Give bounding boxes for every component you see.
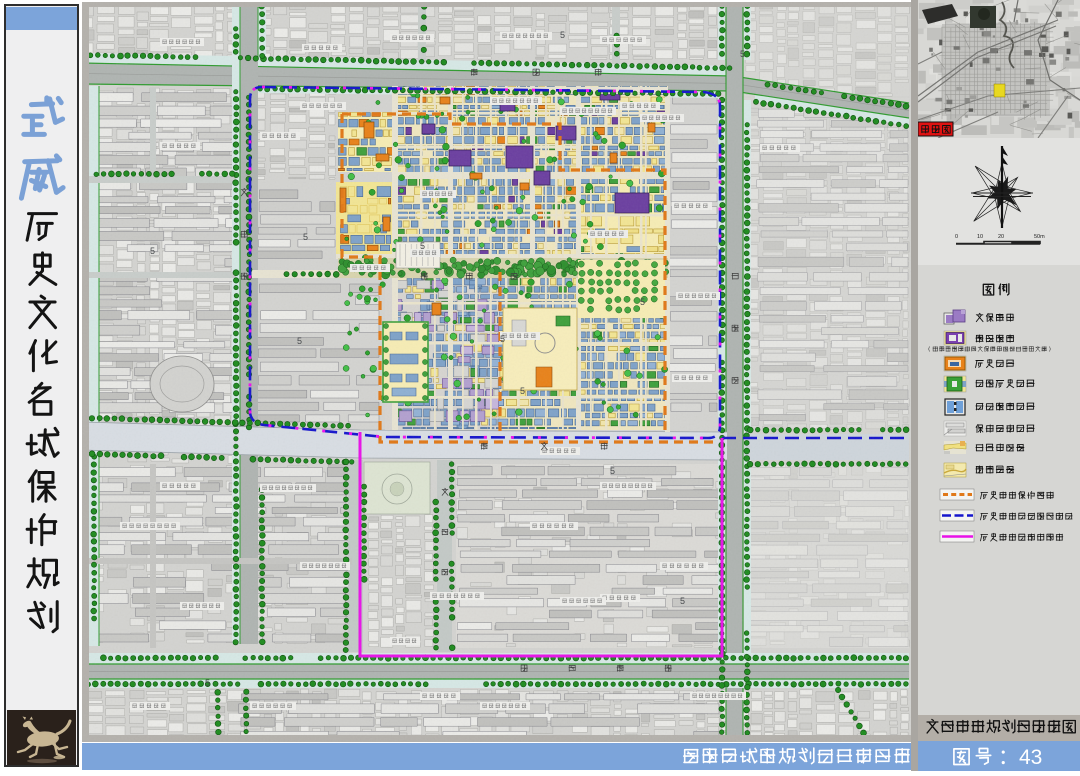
svg-text:：43: ：43 (998, 746, 1042, 769)
svg-text:0: 0 (955, 234, 958, 240)
svg-text:50m: 50m (1034, 234, 1045, 240)
svg-text:10: 10 (977, 234, 983, 240)
svg-text:20: 20 (998, 234, 1004, 240)
